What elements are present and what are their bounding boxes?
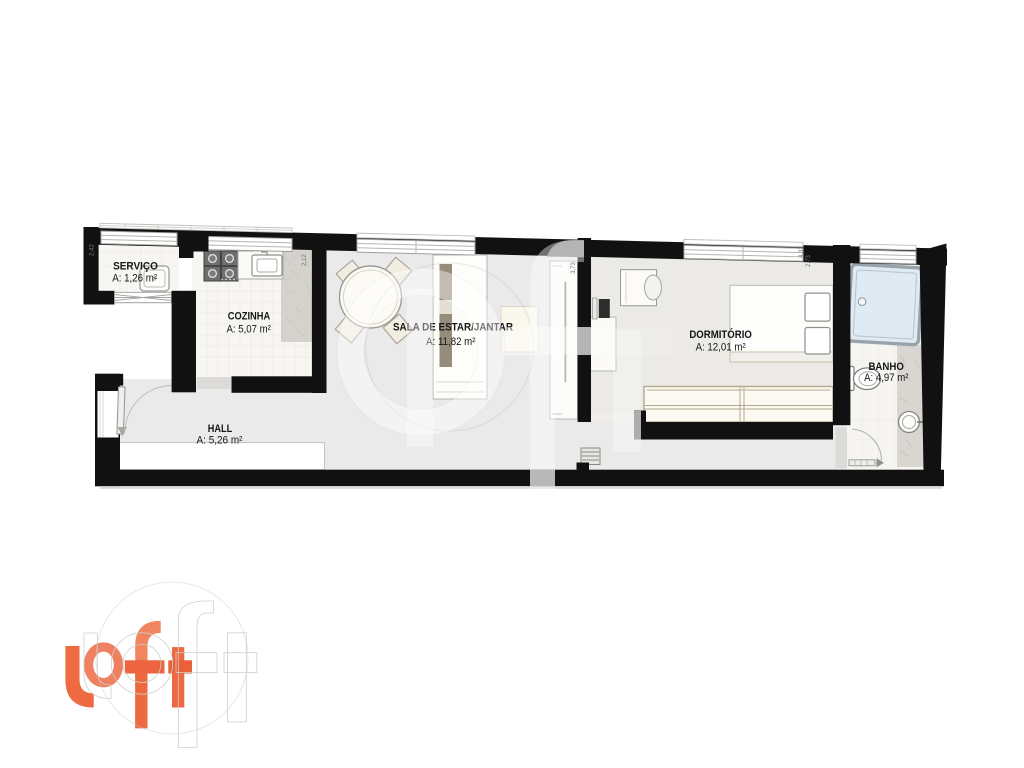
svg-text:SERVIÇO: SERVIÇO bbox=[113, 261, 158, 273]
svg-text:A: 1,26 m²: A: 1,26 m² bbox=[112, 273, 157, 285]
svg-text:A: 12,01 m²: A: 12,01 m² bbox=[696, 342, 746, 354]
svg-text:2,73: 2,73 bbox=[806, 255, 812, 267]
svg-text:2,12: 2,12 bbox=[302, 254, 308, 266]
svg-text:2,42: 2,42 bbox=[90, 244, 96, 256]
svg-text:A: 4,97 m²: A: 4,97 m² bbox=[864, 372, 909, 384]
svg-text:DORMITÓRIO: DORMITÓRIO bbox=[689, 328, 752, 341]
svg-text:COZINHA: COZINHA bbox=[228, 311, 271, 323]
svg-text:4,32: 4,32 bbox=[799, 246, 805, 258]
svg-text:A: 11,82 m²: A: 11,82 m² bbox=[426, 336, 476, 348]
svg-text:A: 5,26 m²: A: 5,26 m² bbox=[197, 434, 243, 446]
svg-text:A: 5,07 m²: A: 5,07 m² bbox=[227, 324, 272, 336]
svg-text:HALL: HALL bbox=[208, 423, 233, 435]
svg-text:3,73: 3,73 bbox=[571, 262, 577, 274]
